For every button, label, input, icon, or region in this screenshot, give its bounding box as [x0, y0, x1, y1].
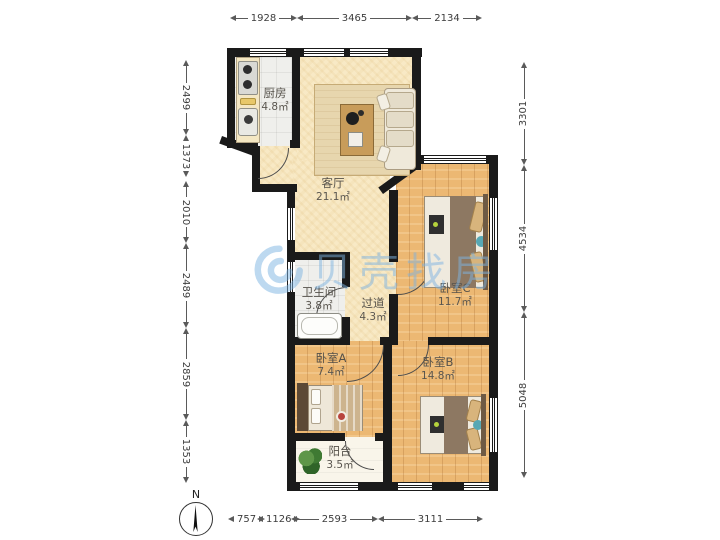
table-tray: [348, 132, 363, 147]
sofa-cushion: [386, 130, 414, 147]
wall-segment: [287, 252, 350, 260]
wall-segment: [287, 345, 295, 441]
room-area: 3.5㎡: [308, 459, 372, 473]
window: [300, 482, 358, 491]
room-label-hallway: 过道 4.3㎡: [341, 296, 405, 325]
room-name: 过道: [341, 296, 405, 311]
room-name: 卧室A: [299, 351, 363, 366]
dim-value: 3465: [339, 13, 370, 24]
room-label-bedroom-c: 卧室C 11.7㎡: [423, 281, 487, 310]
dim-value: 2010: [181, 199, 192, 224]
room-area: 11.7㎡: [423, 296, 487, 310]
window: [250, 48, 286, 57]
dim-value: 2593: [319, 514, 350, 525]
room-name: 卧室C: [423, 281, 487, 296]
dim-left-4: 2489: [180, 243, 192, 328]
room-label-kitchen: 厨房 4.8㎡: [243, 86, 307, 115]
bed-accent: [336, 411, 347, 422]
bed-pillow: [311, 408, 321, 424]
bed-blanket: [332, 385, 362, 431]
room-area: 4.8㎡: [243, 101, 307, 115]
floor-plan-canvas: 厨房 4.8㎡ 客厅 21.1㎡ 卫生间 3.8㎡ 过道 4.3㎡ 卧室C 11…: [0, 0, 720, 540]
arrow-down-icon: [521, 472, 527, 478]
room-name: 客厅: [301, 176, 365, 191]
headboard: [481, 394, 486, 456]
wall-segment: [389, 190, 398, 262]
dim-value: 2489: [181, 273, 192, 298]
sofa-cushion: [386, 111, 414, 128]
device-light: [434, 422, 439, 427]
room-area: 4.3㎡: [341, 311, 405, 325]
room-name: 阳台: [308, 444, 372, 459]
room-area: 7.4㎡: [299, 366, 363, 380]
dim-bottom-1: 757: [228, 513, 257, 525]
dim-bottom-3: 2593: [291, 513, 378, 525]
dim-value: 3111: [415, 514, 446, 525]
teapot: [346, 112, 359, 125]
bed-pillow: [311, 389, 321, 405]
room-label-bedroom-b: 卧室B 14.8㎡: [406, 355, 470, 384]
teacup: [358, 110, 364, 116]
coffee-table: [340, 104, 374, 156]
dim-value: 3301: [519, 101, 530, 126]
dim-left-1: 2499: [180, 60, 192, 135]
sink-faucet: [244, 115, 253, 124]
arrow-right-icon: [476, 15, 482, 21]
dim-right-1: 3301: [518, 62, 530, 165]
compass: N: [176, 488, 216, 536]
window: [287, 208, 295, 240]
dim-left-5: 2859: [180, 328, 192, 420]
room-label-living: 客厅 21.1㎡: [301, 176, 365, 205]
wall-segment: [287, 433, 345, 441]
dim-value: 5048: [519, 382, 530, 407]
arrow-right-icon: [477, 516, 483, 522]
dim-top-2: 3465: [297, 12, 412, 24]
dim-top-1: 1928: [230, 12, 297, 24]
headboard: [297, 383, 308, 431]
room-area: 14.8㎡: [406, 370, 470, 384]
wall-segment: [227, 48, 235, 143]
bed-blanket: [450, 196, 476, 288]
room-name: 卧室B: [406, 355, 470, 370]
dim-value: 757: [234, 514, 259, 525]
north-label: N: [176, 488, 216, 501]
wall-segment: [428, 337, 498, 345]
wall-segment: [375, 433, 392, 441]
room-name: 厨房: [243, 86, 307, 101]
window: [489, 398, 498, 452]
dim-right-2: 4534: [518, 165, 530, 312]
dim-value: 2134: [431, 13, 462, 24]
dim-value: 1353: [181, 439, 192, 464]
dim-left-3: 2010: [180, 181, 192, 243]
dim-value: 4534: [519, 226, 530, 251]
dim-value: 1373: [181, 143, 192, 168]
dim-value: 2499: [181, 85, 192, 110]
stove-burner: [243, 65, 252, 74]
bathtub-inner: [301, 317, 338, 335]
wall-segment: [380, 337, 398, 345]
dim-left-6: 1353: [180, 420, 192, 483]
dim-top-3: 2134: [412, 12, 482, 24]
bed-blanket: [444, 396, 468, 454]
arrow-down-icon: [183, 171, 189, 177]
window: [489, 198, 498, 250]
dim-value: 1928: [248, 13, 279, 24]
dim-bottom-4: 3111: [378, 513, 483, 525]
dim-left-2: 1373: [180, 135, 192, 181]
compass-needle-icon: [190, 505, 201, 532]
dim-value: 2859: [181, 361, 192, 386]
compass-circle: [179, 502, 213, 536]
headboard: [483, 194, 488, 290]
room-label-bedroom-a: 卧室A 7.4㎡: [299, 351, 363, 380]
window: [398, 482, 432, 491]
window: [424, 155, 486, 164]
dim-right-3: 5048: [518, 312, 530, 478]
wall-segment: [342, 252, 350, 287]
device-light: [433, 222, 438, 227]
arrow-down-icon: [183, 477, 189, 483]
room-area: 21.1㎡: [301, 191, 365, 205]
room-label-balcony: 阳台 3.5㎡: [308, 444, 372, 473]
dim-bottom-2: 1126: [257, 513, 291, 525]
dim-value: 1126: [263, 514, 294, 525]
window: [304, 48, 344, 57]
wall-segment: [383, 345, 392, 485]
window: [350, 48, 388, 57]
